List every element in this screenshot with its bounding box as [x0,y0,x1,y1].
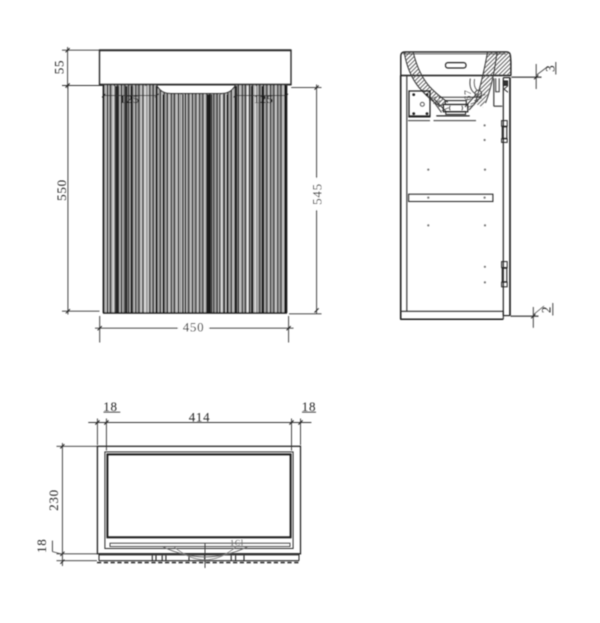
svg-text:67: 67 [464,90,474,101]
svg-text:2: 2 [539,306,554,313]
svg-text:545: 545 [310,183,325,205]
svg-text:414: 414 [189,409,211,424]
svg-text:18: 18 [302,399,316,414]
svg-text:3: 3 [543,65,558,72]
svg-text:450: 450 [183,320,205,335]
svg-text:55: 55 [52,60,67,74]
svg-text:125: 125 [253,92,273,106]
svg-text:125: 125 [119,92,139,106]
svg-text:550: 550 [54,179,69,201]
svg-text:230: 230 [46,489,61,511]
svg-text:1Cl: 1Cl [230,539,244,548]
svg-text:18: 18 [34,538,49,552]
svg-text:18: 18 [103,399,117,414]
